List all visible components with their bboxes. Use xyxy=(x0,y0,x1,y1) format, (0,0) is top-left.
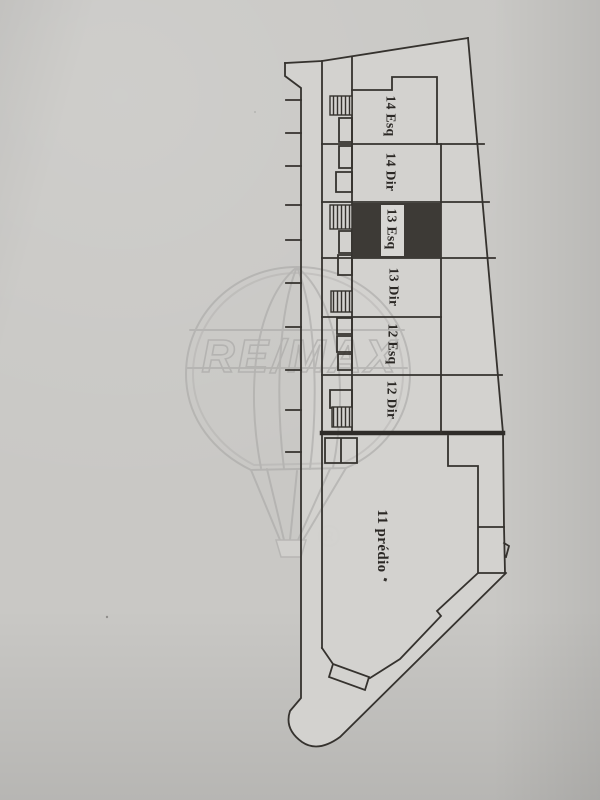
stairs-hatch xyxy=(332,407,352,427)
stairs-hatch xyxy=(330,96,352,115)
unit-label-12-dir: 12 Dir xyxy=(384,381,399,420)
scanned-floor-plan-page: RE/MAX R xyxy=(0,0,600,800)
registered-letter: R xyxy=(324,528,334,544)
stairs-hatch xyxy=(331,291,352,312)
unit-label-11-predio: 11 prédio xyxy=(374,509,390,572)
unit-label-13-dir: 13 Dir xyxy=(386,268,401,307)
stairs-hatch xyxy=(330,205,352,229)
outer-wall-right-lower xyxy=(503,433,509,573)
unit-label-14-dir: 14 Dir xyxy=(383,153,398,192)
unit-label-12-esq: 12 Esq xyxy=(385,323,400,364)
unit-label-14-esq: 14 Esq xyxy=(383,95,398,136)
unit-label-13-esq: 13 Esq xyxy=(384,208,399,249)
floor-plan-svg: RE/MAX R xyxy=(0,0,600,800)
